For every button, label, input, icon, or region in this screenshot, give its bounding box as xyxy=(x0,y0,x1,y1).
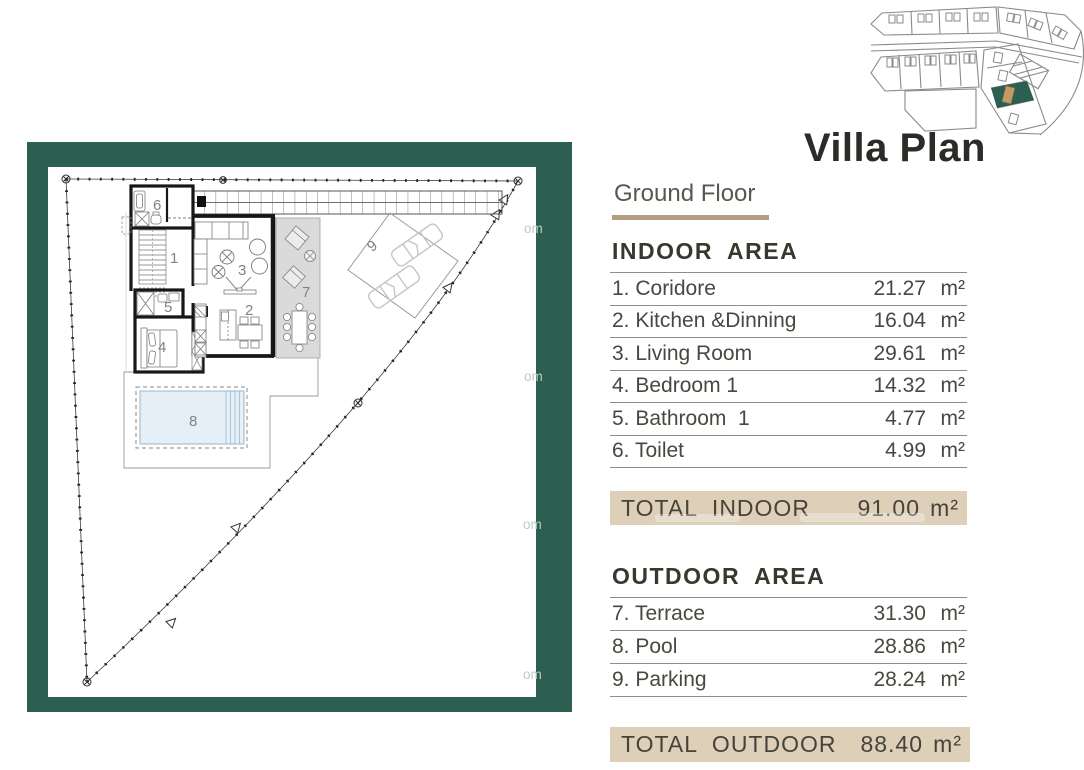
svg-text:om: om xyxy=(524,369,543,384)
site-minimap xyxy=(868,0,1084,138)
kitchen-counter xyxy=(195,304,206,357)
row-value: 4.77 xyxy=(856,407,926,431)
row-label: 7. Terrace xyxy=(612,602,856,626)
table-row: 3. Living Room 29.61 m² xyxy=(610,338,967,371)
terrace xyxy=(276,218,320,358)
row-label: 5. Bathroom 1 xyxy=(612,407,856,431)
entry-marker xyxy=(197,196,206,207)
row-label: 6. Toilet xyxy=(612,439,856,463)
row-value: 29.61 xyxy=(856,342,926,366)
row-label: 8. Pool xyxy=(612,635,856,659)
total-outdoor-label: TOTAL OUTDOOR xyxy=(621,731,853,758)
table-row: 5. Bathroom 1 4.77 m² xyxy=(610,403,967,436)
total-outdoor-bar: TOTAL OUTDOOR 88.40 m² xyxy=(610,727,970,762)
floor-plan-panel: 1 2 3 4 5 6 7 8 9 om om om om xyxy=(0,0,600,770)
row-value: 14.32 xyxy=(856,374,926,398)
page: 1 2 3 4 5 6 7 8 9 om om om om xyxy=(0,0,1084,770)
row-unit: m² xyxy=(934,277,965,301)
room-label-5: 5 xyxy=(164,299,172,316)
room-label-6: 6 xyxy=(153,197,161,214)
side-table xyxy=(305,251,316,262)
total-outdoor-unit: m² xyxy=(931,731,962,758)
row-value: 16.04 xyxy=(856,309,926,333)
table-row: 7. Terrace 31.30 m² xyxy=(610,598,967,631)
row-label: 3. Living Room xyxy=(612,342,856,366)
room-label-8: 8 xyxy=(189,413,197,430)
row-value: 31.30 xyxy=(856,602,926,626)
total-indoor-unit: m² xyxy=(928,495,959,522)
indoor-area-section: INDOOR AREA 1. Coridore 21.27 m² 2. Kitc… xyxy=(610,238,967,468)
outdoor-area-heading: OUTDOOR AREA xyxy=(610,563,967,598)
armchair xyxy=(252,258,268,274)
table-row: 1. Coridore 21.27 m² xyxy=(610,273,967,306)
floor-subtitle: Ground Floor xyxy=(614,180,755,208)
row-unit: m² xyxy=(934,342,965,366)
svg-text:om: om xyxy=(523,517,542,532)
armchair xyxy=(250,239,266,255)
row-label: 1. Coridore xyxy=(612,277,856,301)
row-unit: m² xyxy=(934,374,965,398)
row-unit: m² xyxy=(934,439,965,463)
row-unit: m² xyxy=(934,602,965,626)
indoor-area-heading: INDOOR AREA xyxy=(610,238,967,273)
row-label: 4. Bedroom 1 xyxy=(612,374,856,398)
table-row: 4. Bedroom 1 14.32 m² xyxy=(610,371,967,404)
outdoor-area-section: OUTDOOR AREA 7. Terrace 31.30 m² 8. Pool… xyxy=(610,563,967,697)
svg-text:om: om xyxy=(523,667,542,682)
watermark-blob xyxy=(655,514,740,522)
room-label-2: 2 xyxy=(245,302,253,319)
kitchen-island xyxy=(220,310,236,340)
table-row: 9. Parking 28.24 m² xyxy=(610,664,967,697)
row-unit: m² xyxy=(934,407,965,431)
watermark-blob xyxy=(800,513,925,522)
row-value: 4.99 xyxy=(856,439,926,463)
walkway-strip xyxy=(193,191,502,214)
subtitle-underline xyxy=(612,215,769,220)
room-label-1: 1 xyxy=(170,250,178,267)
row-unit: m² xyxy=(934,668,965,692)
row-unit: m² xyxy=(934,635,965,659)
room-label-4: 4 xyxy=(158,339,166,356)
row-value: 28.24 xyxy=(856,668,926,692)
row-unit: m² xyxy=(934,309,965,333)
total-indoor-bar: TOTAL INDOOR 91.00 m² xyxy=(610,491,967,525)
svg-text:om: om xyxy=(524,221,543,236)
row-value: 28.86 xyxy=(856,635,926,659)
page-title: Villa Plan xyxy=(804,126,986,171)
table-row: 8. Pool 28.86 m² xyxy=(610,631,967,664)
table-row: 6. Toilet 4.99 m² xyxy=(610,436,967,469)
room-label-3: 3 xyxy=(238,262,246,279)
total-outdoor-value: 88.40 xyxy=(853,731,923,758)
row-value: 21.27 xyxy=(856,277,926,301)
row-label: 9. Parking xyxy=(612,668,856,692)
table-row: 2. Kitchen &Dinning 16.04 m² xyxy=(610,306,967,339)
row-label: 2. Kitchen &Dinning xyxy=(612,309,856,333)
room-label-7: 7 xyxy=(302,284,310,301)
